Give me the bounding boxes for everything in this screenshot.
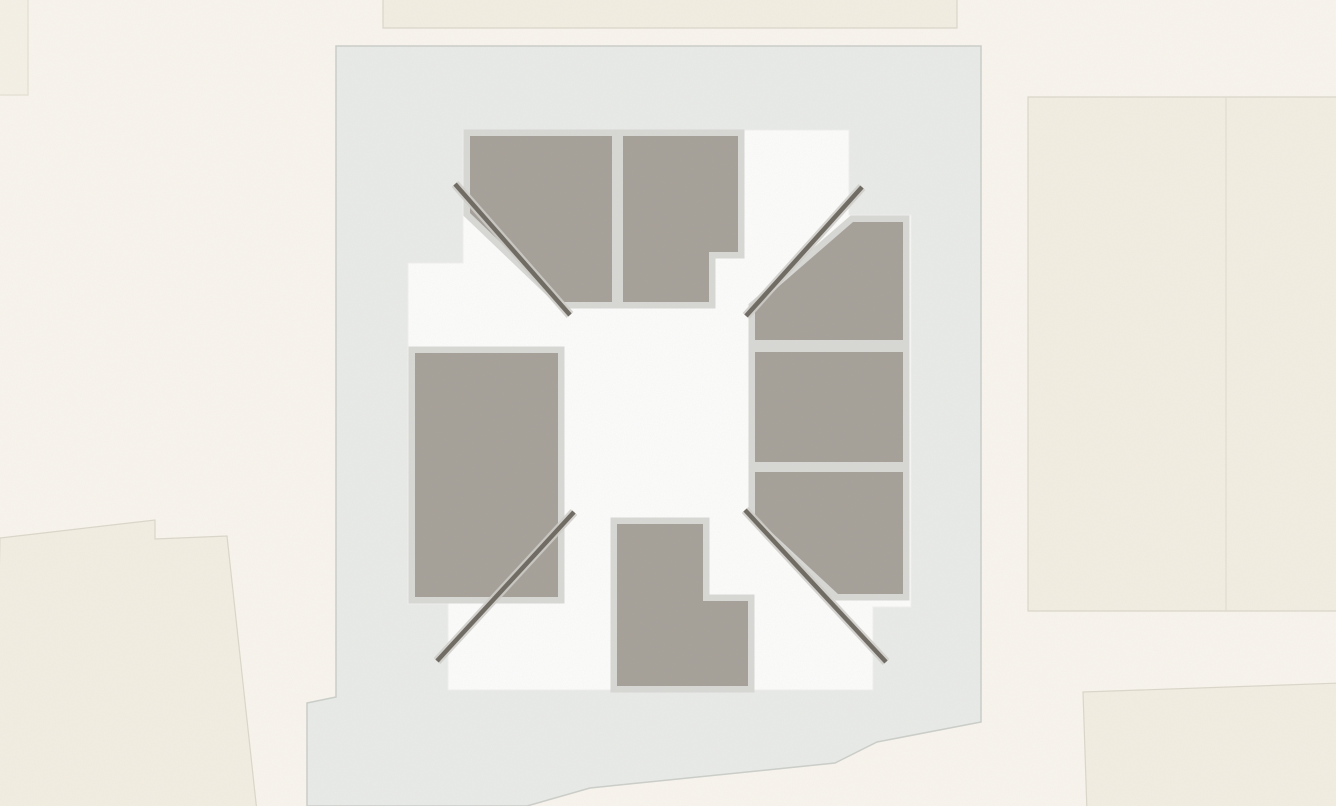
site-plan-canvas (0, 0, 1336, 806)
site-plan-stage (0, 0, 1336, 806)
paper-texture-overlay (0, 0, 1336, 806)
